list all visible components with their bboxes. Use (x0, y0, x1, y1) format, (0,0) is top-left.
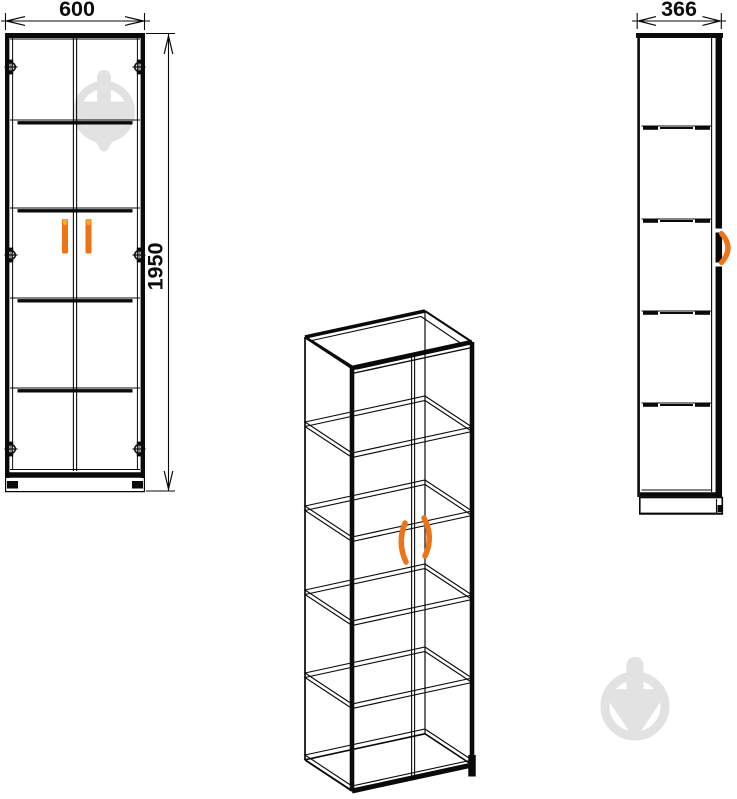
side-view: 366 (632, 0, 728, 514)
front-width-dimension: 600 (1, 0, 150, 30)
side-door-handle (722, 234, 729, 263)
door-handle-left-cap (63, 219, 67, 225)
front-shelf-lines (8, 120, 142, 475)
brand-watermark-icon (77, 70, 131, 147)
side-cabinet-body (636, 33, 724, 497)
isometric-view (305, 311, 472, 791)
door-handle-right-cap (86, 219, 90, 225)
side-plinth (639, 498, 723, 514)
furniture-technical-drawing: 600 1950 (0, 0, 737, 799)
front-height-dimension: 1950 (144, 34, 176, 492)
iso-edges (305, 311, 472, 791)
front-plinth (5, 478, 145, 492)
front-foot-left (7, 481, 18, 489)
brand-watermark-icon (605, 657, 665, 736)
iso-top-face (305, 311, 472, 374)
door-handle-left (401, 523, 406, 562)
iso-base (305, 734, 472, 791)
front-height-value: 1950 (144, 243, 168, 291)
side-shelf-lines (640, 126, 716, 495)
side-foot (718, 505, 723, 512)
side-depth-dimension: 366 (632, 0, 726, 29)
front-width-value: 600 (59, 0, 95, 21)
front-view: 600 1950 (1, 0, 175, 492)
iso-shelves (305, 396, 472, 791)
side-depth-value: 366 (661, 0, 697, 21)
front-foot-right (132, 481, 143, 489)
